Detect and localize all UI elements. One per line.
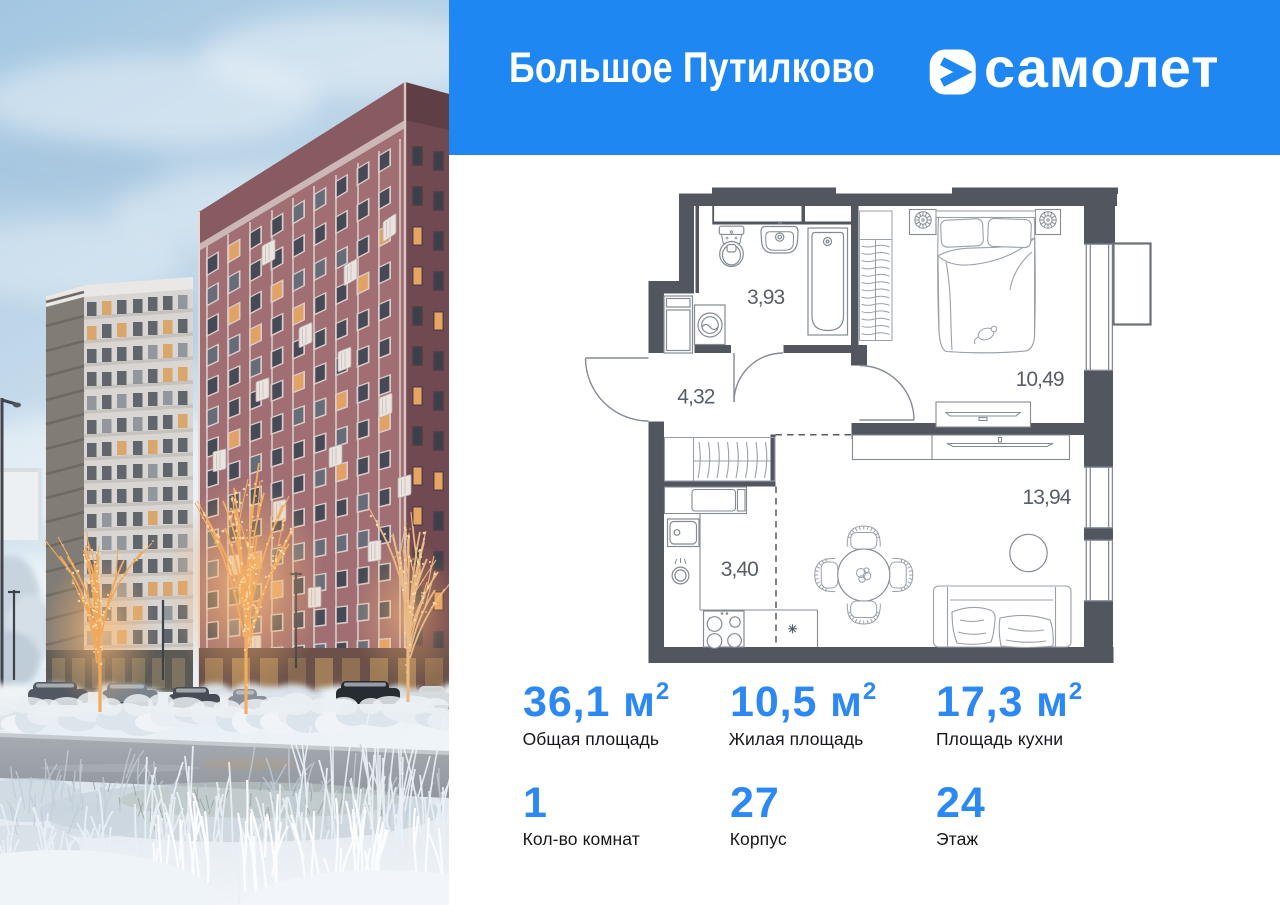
svg-text:3,40: 3,40 (721, 558, 758, 581)
svg-text:10,49: 10,49 (1016, 368, 1064, 391)
svg-text:3,93: 3,93 (747, 286, 784, 309)
svg-text:4,32: 4,32 (677, 386, 714, 409)
svg-text:13,94: 13,94 (1023, 486, 1072, 509)
